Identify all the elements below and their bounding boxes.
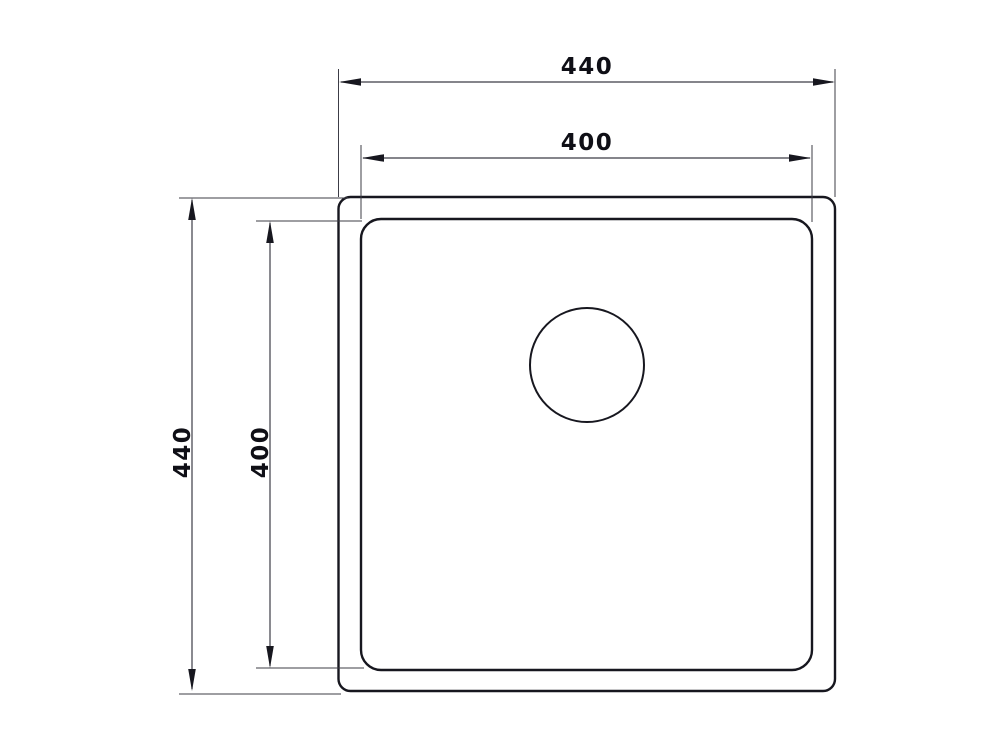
dim-label-left-outer: 440 [170,426,196,479]
sink-body [339,197,836,691]
dim-label-left-inner: 400 [248,426,274,479]
arrowhead-left [339,78,361,86]
dim-label-top-outer: 440 [561,54,614,80]
arrowhead-right [813,78,835,86]
arrowhead-up [188,198,196,220]
arrowhead-down [188,669,196,691]
sink-outer-rim-outline [339,197,836,691]
dim-top-outer: 440 [339,54,836,197]
arrowhead-left [362,154,384,162]
dim-top-inner: 400 [361,130,812,222]
arrowhead-up [266,221,274,243]
arrowhead-down [266,646,274,668]
technical-drawing-canvas: 440 400 440 400 [0,0,1000,750]
drain-hole-circle [530,308,644,422]
sink-bowl-inner-outline [361,219,812,670]
technical-drawing-page: 440 400 440 400 [0,0,1000,750]
arrowhead-right [789,154,811,162]
dim-label-top-inner: 400 [561,130,614,156]
dim-left-inner: 400 [248,221,364,668]
